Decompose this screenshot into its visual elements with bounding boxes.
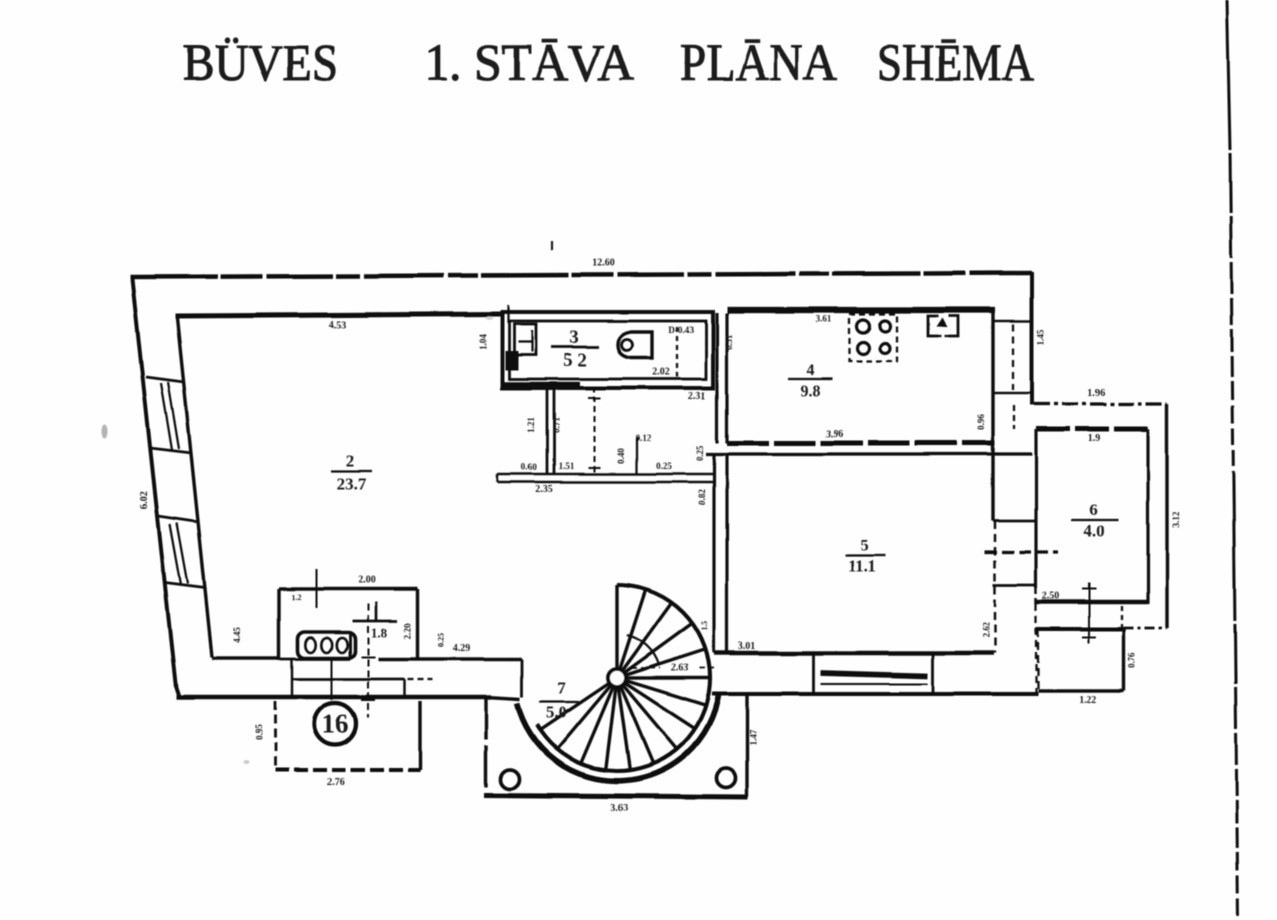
svg-text:1.9: 1.9 bbox=[1088, 433, 1101, 444]
svg-text:SHĒMA: SHĒMA bbox=[877, 35, 1034, 92]
svg-text:2.35: 2.35 bbox=[535, 484, 553, 495]
svg-text:3.12: 3.12 bbox=[1171, 512, 1181, 528]
svg-text:0.60: 0.60 bbox=[521, 462, 537, 472]
svg-text:1.47: 1.47 bbox=[748, 730, 758, 746]
svg-text:4.29: 4.29 bbox=[453, 643, 471, 654]
svg-text:2.00: 2.00 bbox=[358, 575, 376, 586]
svg-text:0.51: 0.51 bbox=[724, 334, 734, 350]
svg-text:3.63: 3.63 bbox=[610, 803, 628, 814]
svg-text:0.25: 0.25 bbox=[695, 445, 705, 461]
svg-text:4.0: 4.0 bbox=[1083, 521, 1104, 540]
svg-text:5.0: 5.0 bbox=[545, 703, 566, 722]
svg-text:6: 6 bbox=[1089, 500, 1098, 519]
svg-text:7: 7 bbox=[557, 679, 566, 698]
svg-text:16: 16 bbox=[322, 709, 349, 739]
svg-text:12.60: 12.60 bbox=[593, 258, 616, 269]
svg-text:3: 3 bbox=[569, 327, 579, 348]
svg-text:1.04: 1.04 bbox=[478, 334, 488, 350]
svg-text:4.53: 4.53 bbox=[328, 320, 346, 331]
svg-text:0.76: 0.76 bbox=[1127, 652, 1137, 668]
svg-text:1.45: 1.45 bbox=[1036, 329, 1046, 345]
svg-text:9.8: 9.8 bbox=[800, 383, 820, 400]
svg-text:1.2: 1.2 bbox=[291, 593, 301, 602]
svg-text:3.96: 3.96 bbox=[826, 429, 844, 440]
svg-text:BÜVES: BÜVES bbox=[183, 35, 338, 92]
svg-text:23.7: 23.7 bbox=[336, 474, 366, 493]
svg-text:4: 4 bbox=[806, 362, 814, 379]
svg-text:2.31: 2.31 bbox=[688, 391, 706, 402]
svg-text:D-0.43: D-0.43 bbox=[668, 325, 694, 335]
svg-text:2.50: 2.50 bbox=[1042, 591, 1060, 602]
svg-text:5: 5 bbox=[861, 536, 870, 555]
svg-text:0.71: 0.71 bbox=[551, 417, 561, 433]
svg-text:0.95: 0.95 bbox=[254, 724, 264, 740]
svg-text:1.96: 1.96 bbox=[1087, 388, 1105, 399]
svg-text:5 2: 5 2 bbox=[563, 350, 587, 371]
svg-text:1.21: 1.21 bbox=[526, 417, 536, 433]
svg-text:0.40: 0.40 bbox=[616, 448, 626, 464]
svg-text:3.01: 3.01 bbox=[738, 641, 756, 652]
svg-text:2.76: 2.76 bbox=[327, 777, 345, 788]
svg-text:1.22: 1.22 bbox=[1079, 695, 1097, 706]
svg-text:2.63: 2.63 bbox=[671, 663, 689, 674]
svg-text:4.45: 4.45 bbox=[232, 627, 242, 643]
svg-text:0.25: 0.25 bbox=[656, 461, 672, 471]
svg-text:0.82: 0.82 bbox=[697, 489, 707, 505]
svg-text:1.51: 1.51 bbox=[558, 461, 574, 471]
svg-text:0.25: 0.25 bbox=[437, 633, 446, 647]
svg-text:2.62: 2.62 bbox=[981, 622, 991, 638]
svg-text:2: 2 bbox=[346, 451, 355, 470]
svg-text:PLĀNA: PLĀNA bbox=[680, 35, 837, 92]
svg-text:2.02: 2.02 bbox=[652, 367, 670, 378]
svg-text:3.61: 3.61 bbox=[816, 314, 832, 324]
svg-text:1.8: 1.8 bbox=[371, 625, 388, 640]
svg-text:1.5: 1.5 bbox=[700, 621, 709, 631]
svg-text:0.96: 0.96 bbox=[976, 414, 986, 430]
svg-text:6.02: 6.02 bbox=[139, 491, 150, 509]
svg-text:2.20: 2.20 bbox=[403, 623, 413, 639]
svg-text:11.1: 11.1 bbox=[848, 557, 877, 576]
svg-text:1. STĀVA: 1. STĀVA bbox=[424, 35, 634, 92]
